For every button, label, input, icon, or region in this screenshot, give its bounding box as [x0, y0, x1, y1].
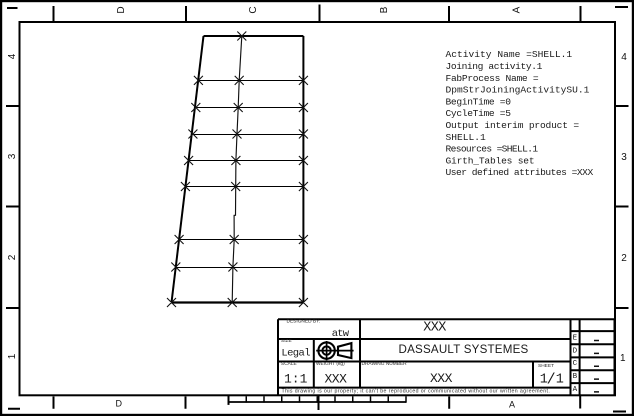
svg-text:4: 4 — [7, 53, 18, 59]
svg-text:1:1: 1:1 — [284, 372, 308, 387]
svg-text:D: D — [573, 347, 578, 355]
svg-text:Resources =SHELL.1: Resources =SHELL.1 — [446, 144, 539, 155]
svg-text:D: D — [116, 6, 127, 13]
svg-text:atw: atw — [332, 328, 350, 340]
svg-text:SIZE: SIZE — [281, 338, 292, 344]
svg-text:This drawing is our property;: This drawing is our property; it can't b… — [282, 389, 551, 395]
svg-text:D: D — [115, 399, 122, 409]
svg-text:A: A — [509, 399, 515, 409]
svg-text:Girth_Tables set: Girth_Tables set — [446, 155, 535, 166]
svg-text:XXX: XXX — [423, 320, 446, 335]
svg-text:SHELL.1: SHELL.1 — [446, 132, 487, 143]
svg-text:A: A — [512, 6, 523, 13]
svg-text:SCALE: SCALE — [281, 361, 297, 367]
svg-text:DESIGNED BY:: DESIGNED BY: — [287, 319, 321, 325]
svg-text:Activity Name =SHELL.1: Activity Name =SHELL.1 — [446, 49, 573, 60]
svg-text:1: 1 — [7, 353, 18, 359]
svg-text:CycleTime =5: CycleTime =5 — [446, 108, 512, 119]
svg-text:C: C — [248, 6, 259, 13]
svg-text:Legal: Legal — [281, 347, 310, 359]
svg-text:/: / — [547, 371, 556, 388]
svg-text:SHEET: SHEET — [538, 363, 554, 369]
svg-text:B: B — [573, 373, 578, 381]
svg-text:1: 1 — [556, 373, 564, 388]
svg-text:2: 2 — [621, 253, 627, 264]
svg-text:4: 4 — [621, 52, 627, 63]
svg-text:Joining activity.1: Joining activity.1 — [446, 61, 543, 72]
svg-text:XXX: XXX — [325, 372, 348, 387]
svg-text:User defined attributes =XXX: User defined attributes =XXX — [446, 167, 594, 178]
svg-text:Output interim product =: Output interim product = — [446, 120, 580, 131]
svg-text:FabProcess Name =: FabProcess Name = — [446, 73, 539, 84]
svg-text:2: 2 — [7, 254, 18, 260]
svg-text:DASSAULT SYSTEMES: DASSAULT SYSTEMES — [399, 343, 529, 356]
svg-text:DRAWING NUMBER: DRAWING NUMBER — [362, 361, 408, 367]
svg-text:BeginTime =0: BeginTime =0 — [446, 96, 512, 107]
svg-text:WEIGHT (kg): WEIGHT (kg) — [316, 361, 345, 367]
svg-text:3: 3 — [7, 153, 18, 159]
svg-text:XXX: XXX — [430, 371, 453, 386]
svg-text:E: E — [573, 334, 578, 342]
svg-text:1: 1 — [620, 353, 626, 364]
svg-text:DpmStrJoiningActivitySU.1: DpmStrJoiningActivitySU.1 — [446, 85, 590, 96]
svg-text:C: C — [573, 360, 578, 368]
svg-text:A: A — [573, 386, 578, 394]
svg-text:3: 3 — [621, 152, 627, 163]
svg-text:B: B — [379, 6, 390, 13]
